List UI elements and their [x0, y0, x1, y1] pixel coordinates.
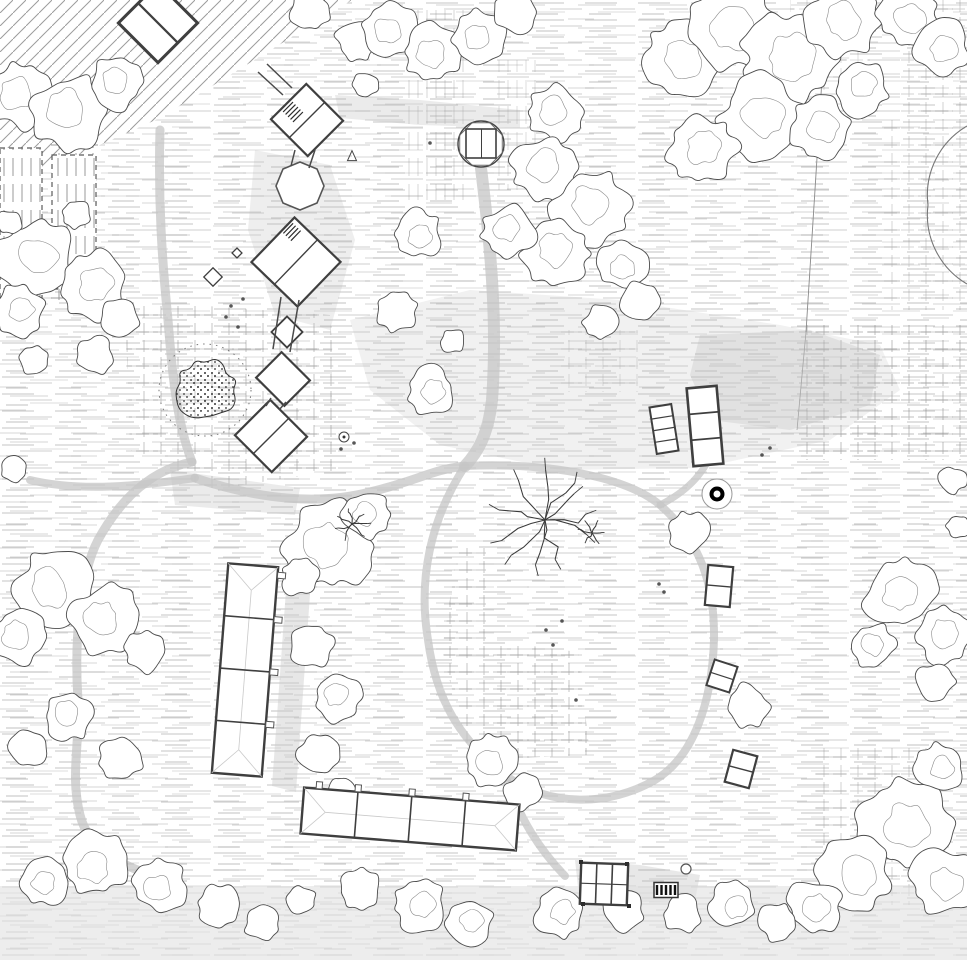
- scatter-dot: [428, 141, 432, 145]
- site-plan-drawing: [0, 0, 967, 960]
- scatter-dot: [760, 453, 764, 457]
- scatter-dot: [560, 619, 564, 623]
- scrub-east-mid: [880, 120, 967, 310]
- tree-canopy: [440, 330, 463, 352]
- corner-post-mark: [581, 902, 585, 906]
- glasshouse: [580, 863, 628, 906]
- well: [681, 864, 691, 874]
- barn: [687, 386, 724, 466]
- shed-north: [705, 565, 733, 607]
- scatter-dot: [551, 643, 555, 647]
- corner-post-mark: [627, 904, 631, 908]
- round-tank: [702, 479, 732, 509]
- scatter-dot: [241, 297, 245, 301]
- cold-frames: [654, 883, 678, 898]
- scatter-dot: [236, 325, 240, 329]
- scatter-dot: [352, 441, 356, 445]
- scatter-dot: [657, 582, 661, 586]
- scatter-dot: [768, 446, 772, 450]
- scatter-dot: [574, 698, 578, 702]
- tree-canopy: [341, 867, 379, 910]
- tree-canopy: [0, 211, 22, 233]
- tree-canopy: [19, 346, 48, 375]
- scatter-dot: [229, 304, 233, 308]
- corner-post-mark: [579, 860, 583, 864]
- corner-post-mark: [625, 862, 629, 866]
- scatter-dot: [224, 315, 228, 319]
- garden-pavilion: [458, 121, 504, 167]
- scatter-dot: [339, 447, 343, 451]
- drawing-canvas: [0, 0, 967, 960]
- main-house-courtyard: [276, 162, 324, 210]
- circle-mark: [339, 432, 349, 442]
- scatter-dot: [662, 590, 666, 594]
- scatter-dot: [544, 628, 548, 632]
- tree-canopy: [198, 884, 239, 928]
